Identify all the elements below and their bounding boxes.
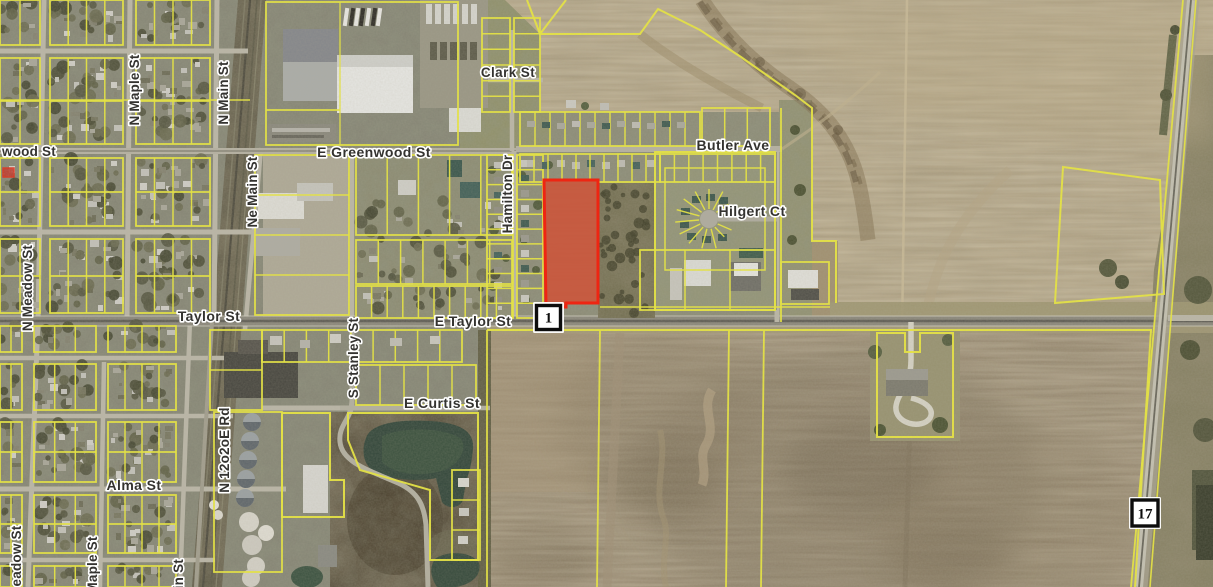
svg-text:Clark St: Clark St — [481, 65, 535, 80]
svg-text:Butler Ave: Butler Ave — [697, 137, 770, 153]
svg-text:Ne Main St: Ne Main St — [245, 156, 260, 227]
svg-text:E Curtis St: E Curtis St — [404, 395, 480, 411]
svg-text:S Stanley St: S Stanley St — [346, 317, 361, 398]
svg-text:Maple St: Maple St — [85, 536, 100, 587]
svg-text:N Meadow St: N Meadow St — [20, 245, 35, 332]
svg-text:wood St: wood St — [1, 144, 56, 159]
svg-text:N 12o2oE Rd: N 12o2oE Rd — [217, 407, 232, 492]
svg-text:E Taylor St: E Taylor St — [435, 313, 512, 329]
svg-text:N Main St: N Main St — [216, 61, 231, 125]
svg-text:17: 17 — [1138, 507, 1154, 523]
svg-text:1: 1 — [545, 311, 553, 327]
svg-text:Alma St: Alma St — [107, 477, 162, 493]
svg-text:Hilgert Ct: Hilgert Ct — [719, 203, 786, 219]
svg-text:Taylor St: Taylor St — [178, 308, 240, 324]
svg-text:eadow St: eadow St — [9, 525, 24, 586]
svg-text:ain St: ain St — [171, 559, 186, 587]
svg-text:Hamilton Dr: Hamilton Dr — [500, 154, 515, 233]
svg-text:N Maple St: N Maple St — [127, 54, 142, 125]
svg-text:E Greenwood St: E Greenwood St — [317, 144, 431, 160]
